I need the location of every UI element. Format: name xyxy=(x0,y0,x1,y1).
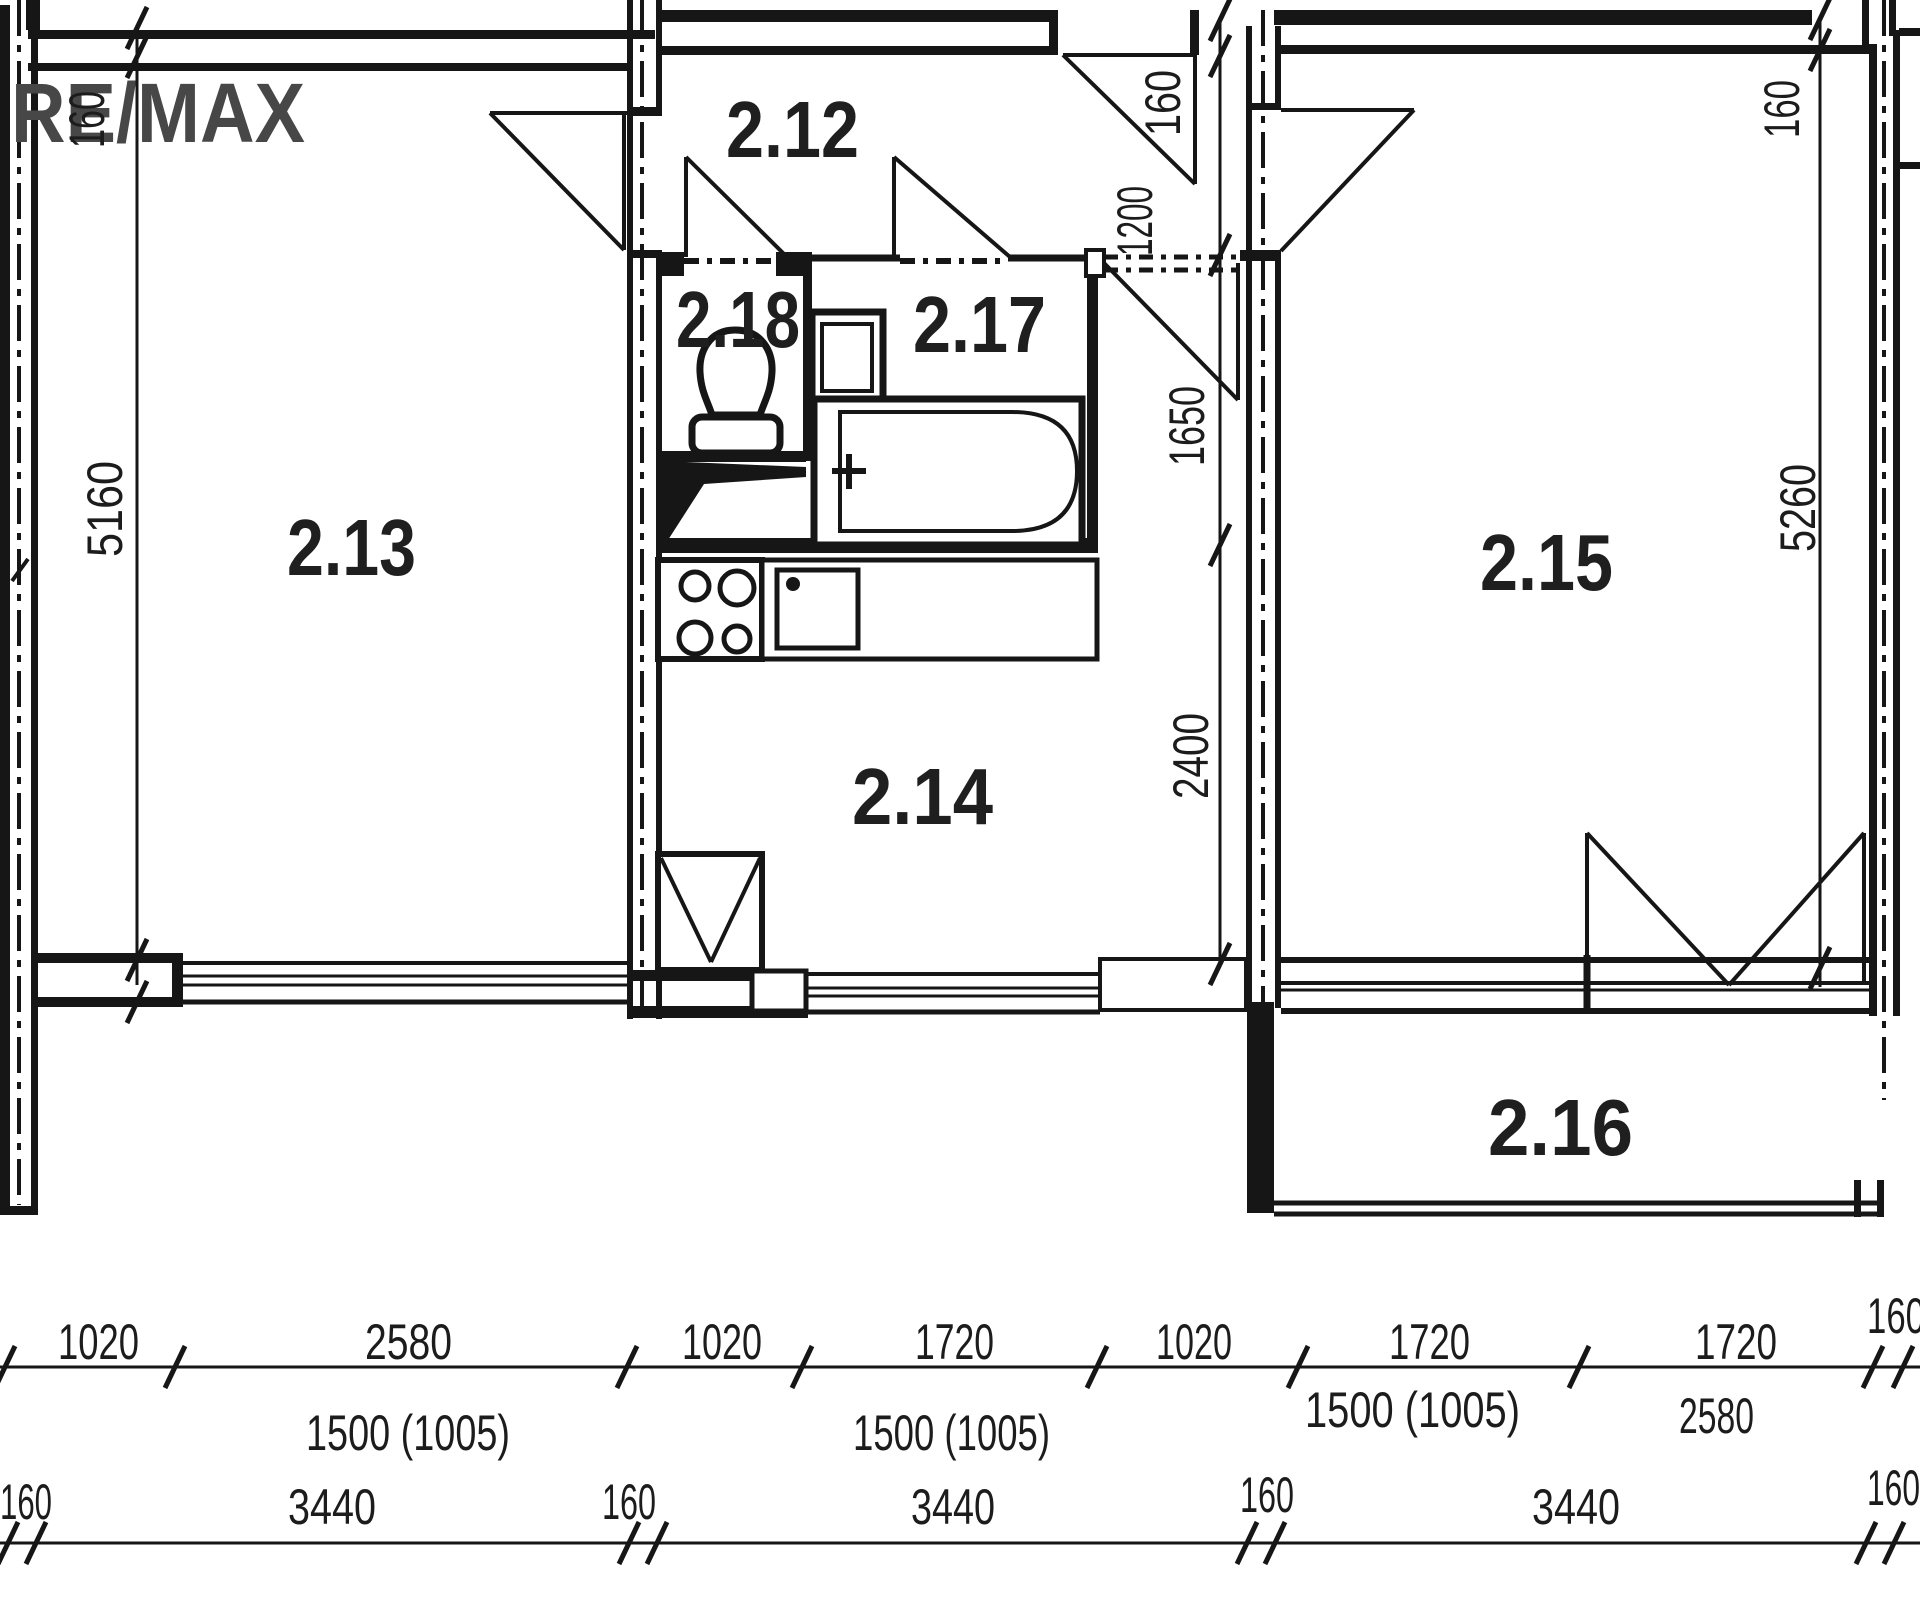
svg-text:160: 160 xyxy=(59,91,115,148)
svg-text:RE/MAX: RE/MAX xyxy=(11,66,305,160)
svg-text:160: 160 xyxy=(1135,70,1191,136)
svg-text:2580: 2580 xyxy=(365,1314,452,1370)
svg-text:1720: 1720 xyxy=(1695,1314,1777,1370)
svg-text:2.15: 2.15 xyxy=(1480,518,1613,607)
svg-text:2580: 2580 xyxy=(1679,1388,1754,1444)
svg-text:3440: 3440 xyxy=(1532,1479,1620,1535)
svg-text:1720: 1720 xyxy=(1389,1314,1470,1370)
svg-text:160: 160 xyxy=(1867,1460,1920,1516)
svg-text:1020: 1020 xyxy=(58,1314,139,1370)
svg-text:5260: 5260 xyxy=(1770,464,1826,552)
svg-text:3440: 3440 xyxy=(288,1479,376,1535)
svg-text:1200: 1200 xyxy=(1107,186,1163,256)
svg-text:1500 (1005): 1500 (1005) xyxy=(853,1405,1050,1461)
svg-text:5160: 5160 xyxy=(77,461,133,557)
svg-text:2.16: 2.16 xyxy=(1488,1083,1633,1172)
svg-text:2400: 2400 xyxy=(1163,713,1219,799)
svg-text:2.12: 2.12 xyxy=(726,85,859,174)
svg-text:1720: 1720 xyxy=(915,1314,994,1370)
svg-text:2.14: 2.14 xyxy=(852,752,993,841)
svg-text:160: 160 xyxy=(0,1474,52,1530)
svg-text:2.13: 2.13 xyxy=(287,503,416,592)
svg-text:160: 160 xyxy=(1240,1467,1294,1523)
svg-text:1020: 1020 xyxy=(682,1314,762,1370)
svg-text:3440: 3440 xyxy=(911,1479,995,1535)
svg-text:160: 160 xyxy=(1867,1288,1920,1344)
svg-text:160: 160 xyxy=(602,1474,656,1530)
svg-text:160: 160 xyxy=(1754,80,1810,138)
svg-text:1020: 1020 xyxy=(1156,1314,1232,1370)
svg-text:1650: 1650 xyxy=(1159,386,1215,466)
svg-text:1500 (1005): 1500 (1005) xyxy=(1305,1382,1520,1438)
svg-text:2.18: 2.18 xyxy=(676,275,800,364)
svg-text:1500 (1005): 1500 (1005) xyxy=(306,1405,510,1461)
svg-text:2.17: 2.17 xyxy=(913,280,1046,369)
